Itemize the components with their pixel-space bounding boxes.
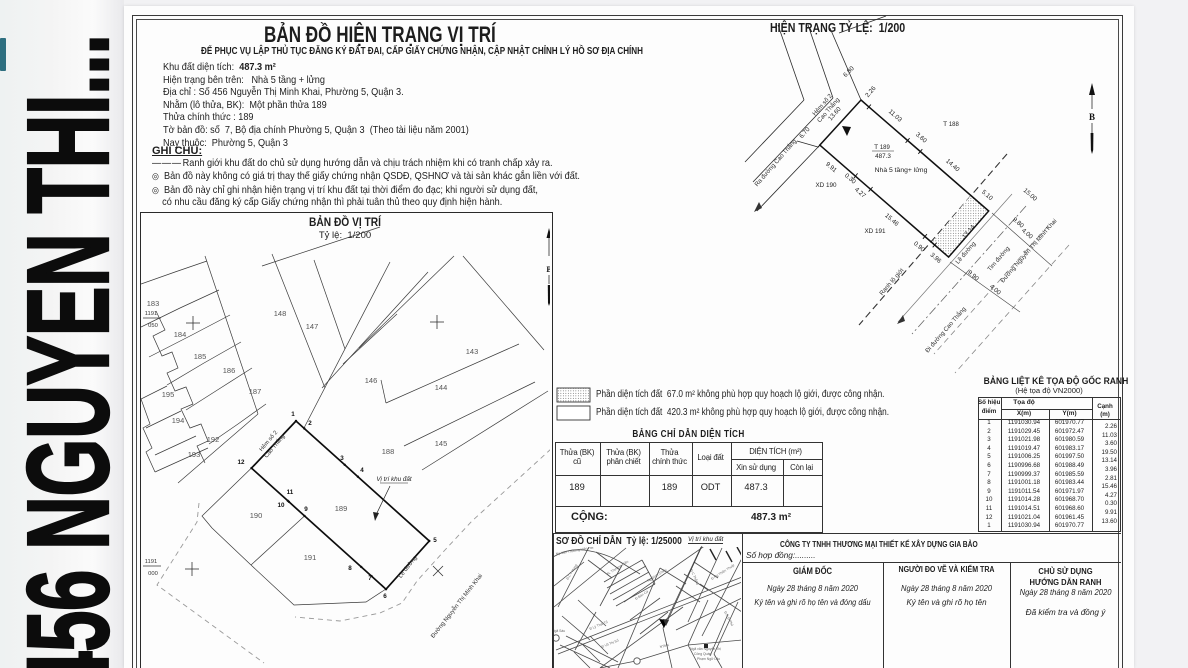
svg-text:Ngã Sáu: Ngã Sáu: [552, 629, 565, 633]
svg-text:192: 192: [207, 435, 220, 444]
svg-text:9: 9: [304, 506, 308, 513]
svg-text:4: 4: [360, 467, 364, 474]
svg-text:Phạm Ngữ Lão: Phạm Ngữ Lão: [697, 657, 720, 661]
svg-text:B: B: [546, 265, 552, 274]
svg-text:15.00: 15.00: [1022, 187, 1039, 203]
svg-text:188: 188: [382, 447, 395, 456]
svg-text:15.46: 15.46: [883, 212, 900, 228]
svg-text:0.90: 0.90: [912, 240, 926, 254]
svg-text:T 188: T 188: [943, 121, 959, 128]
svg-text:5.10: 5.10: [980, 189, 994, 203]
svg-text:12: 12: [237, 459, 245, 466]
svg-text:5: 5: [433, 537, 437, 544]
svg-text:7: 7: [368, 575, 372, 582]
svg-text:148: 148: [274, 309, 287, 318]
svg-text:9.91: 9.91: [824, 161, 838, 175]
svg-text:1191: 1191: [145, 311, 157, 317]
svg-text:3.96: 3.96: [929, 252, 943, 266]
svg-text:8: 8: [348, 565, 352, 572]
svg-text:Ranh lộ giới: Ranh lộ giới: [878, 267, 905, 297]
svg-text:487.3: 487.3: [875, 153, 891, 160]
svg-text:189: 189: [335, 504, 348, 513]
svg-text:187: 187: [249, 387, 262, 396]
svg-text:2.26: 2.26: [864, 85, 878, 99]
svg-text:1: 1: [291, 411, 295, 418]
svg-text:6.80: 6.80: [842, 65, 856, 79]
svg-text:4.00: 4.00: [988, 283, 1002, 297]
svg-text:195: 195: [162, 390, 175, 399]
svg-text:6: 6: [383, 593, 387, 600]
svg-text:Đường Nguyễn Thị Minh Khai: Đường Nguyễn Thị Minh Khai: [430, 573, 484, 640]
svg-text:Lề đường: Lề đường: [398, 555, 419, 579]
svg-text:194: 194: [172, 416, 185, 425]
svg-text:186: 186: [223, 366, 236, 375]
svg-text:Vị trí khu đất: Vị trí khu đất: [376, 475, 412, 483]
svg-text:Đ Vồ Thị Số: Đ Vồ Thị Số: [601, 638, 619, 649]
svg-text:B: B: [1089, 112, 1095, 122]
svg-text:11: 11: [287, 489, 294, 496]
svg-text:190: 190: [250, 511, 263, 520]
svg-text:145: 145: [435, 439, 448, 448]
svg-text:XD 190: XD 190: [815, 182, 837, 189]
svg-text:NTMK: NTMK: [659, 643, 670, 649]
svg-text:1191: 1191: [145, 559, 157, 565]
svg-text:185: 185: [194, 352, 207, 361]
svg-text:191: 191: [304, 553, 317, 562]
svg-text:3.60: 3.60: [914, 131, 928, 145]
svg-text:000: 000: [148, 571, 158, 577]
svg-text:9.90: 9.90: [966, 269, 980, 283]
svg-text:T 189: T 189: [874, 144, 890, 151]
svg-text:10: 10: [277, 502, 285, 509]
svg-text:Ng Đình Chiểu: Ng Đình Chiểu: [646, 568, 667, 583]
svg-text:11.03: 11.03: [887, 108, 904, 124]
svg-text:147: 147: [306, 322, 319, 331]
svg-text:Ra đường Cao Thắng: Ra đường Cao Thắng: [753, 138, 798, 189]
svg-text:184: 184: [174, 330, 187, 339]
svg-text:XD 191: XD 191: [864, 228, 886, 235]
svg-text:050: 050: [148, 323, 158, 329]
svg-text:14.40: 14.40: [944, 158, 961, 174]
svg-text:Công Quán: Công Quán: [694, 652, 711, 656]
svg-text:4.00: 4.00: [1020, 227, 1034, 241]
svg-text:Nhà 5 tầng+ lửng: Nhà 5 tầng+ lửng: [875, 165, 928, 174]
svg-text:6.70: 6.70: [798, 126, 812, 140]
svg-text:143: 143: [466, 347, 479, 356]
svg-text:193: 193: [188, 450, 201, 459]
svg-text:183: 183: [147, 299, 160, 308]
svg-text:4.27: 4.27: [853, 186, 867, 200]
svg-text:3: 3: [340, 455, 344, 462]
svg-text:144: 144: [435, 383, 448, 392]
svg-text:2: 2: [308, 420, 312, 427]
svg-text:0.30: 0.30: [843, 172, 857, 186]
svg-text:146: 146: [365, 376, 378, 385]
